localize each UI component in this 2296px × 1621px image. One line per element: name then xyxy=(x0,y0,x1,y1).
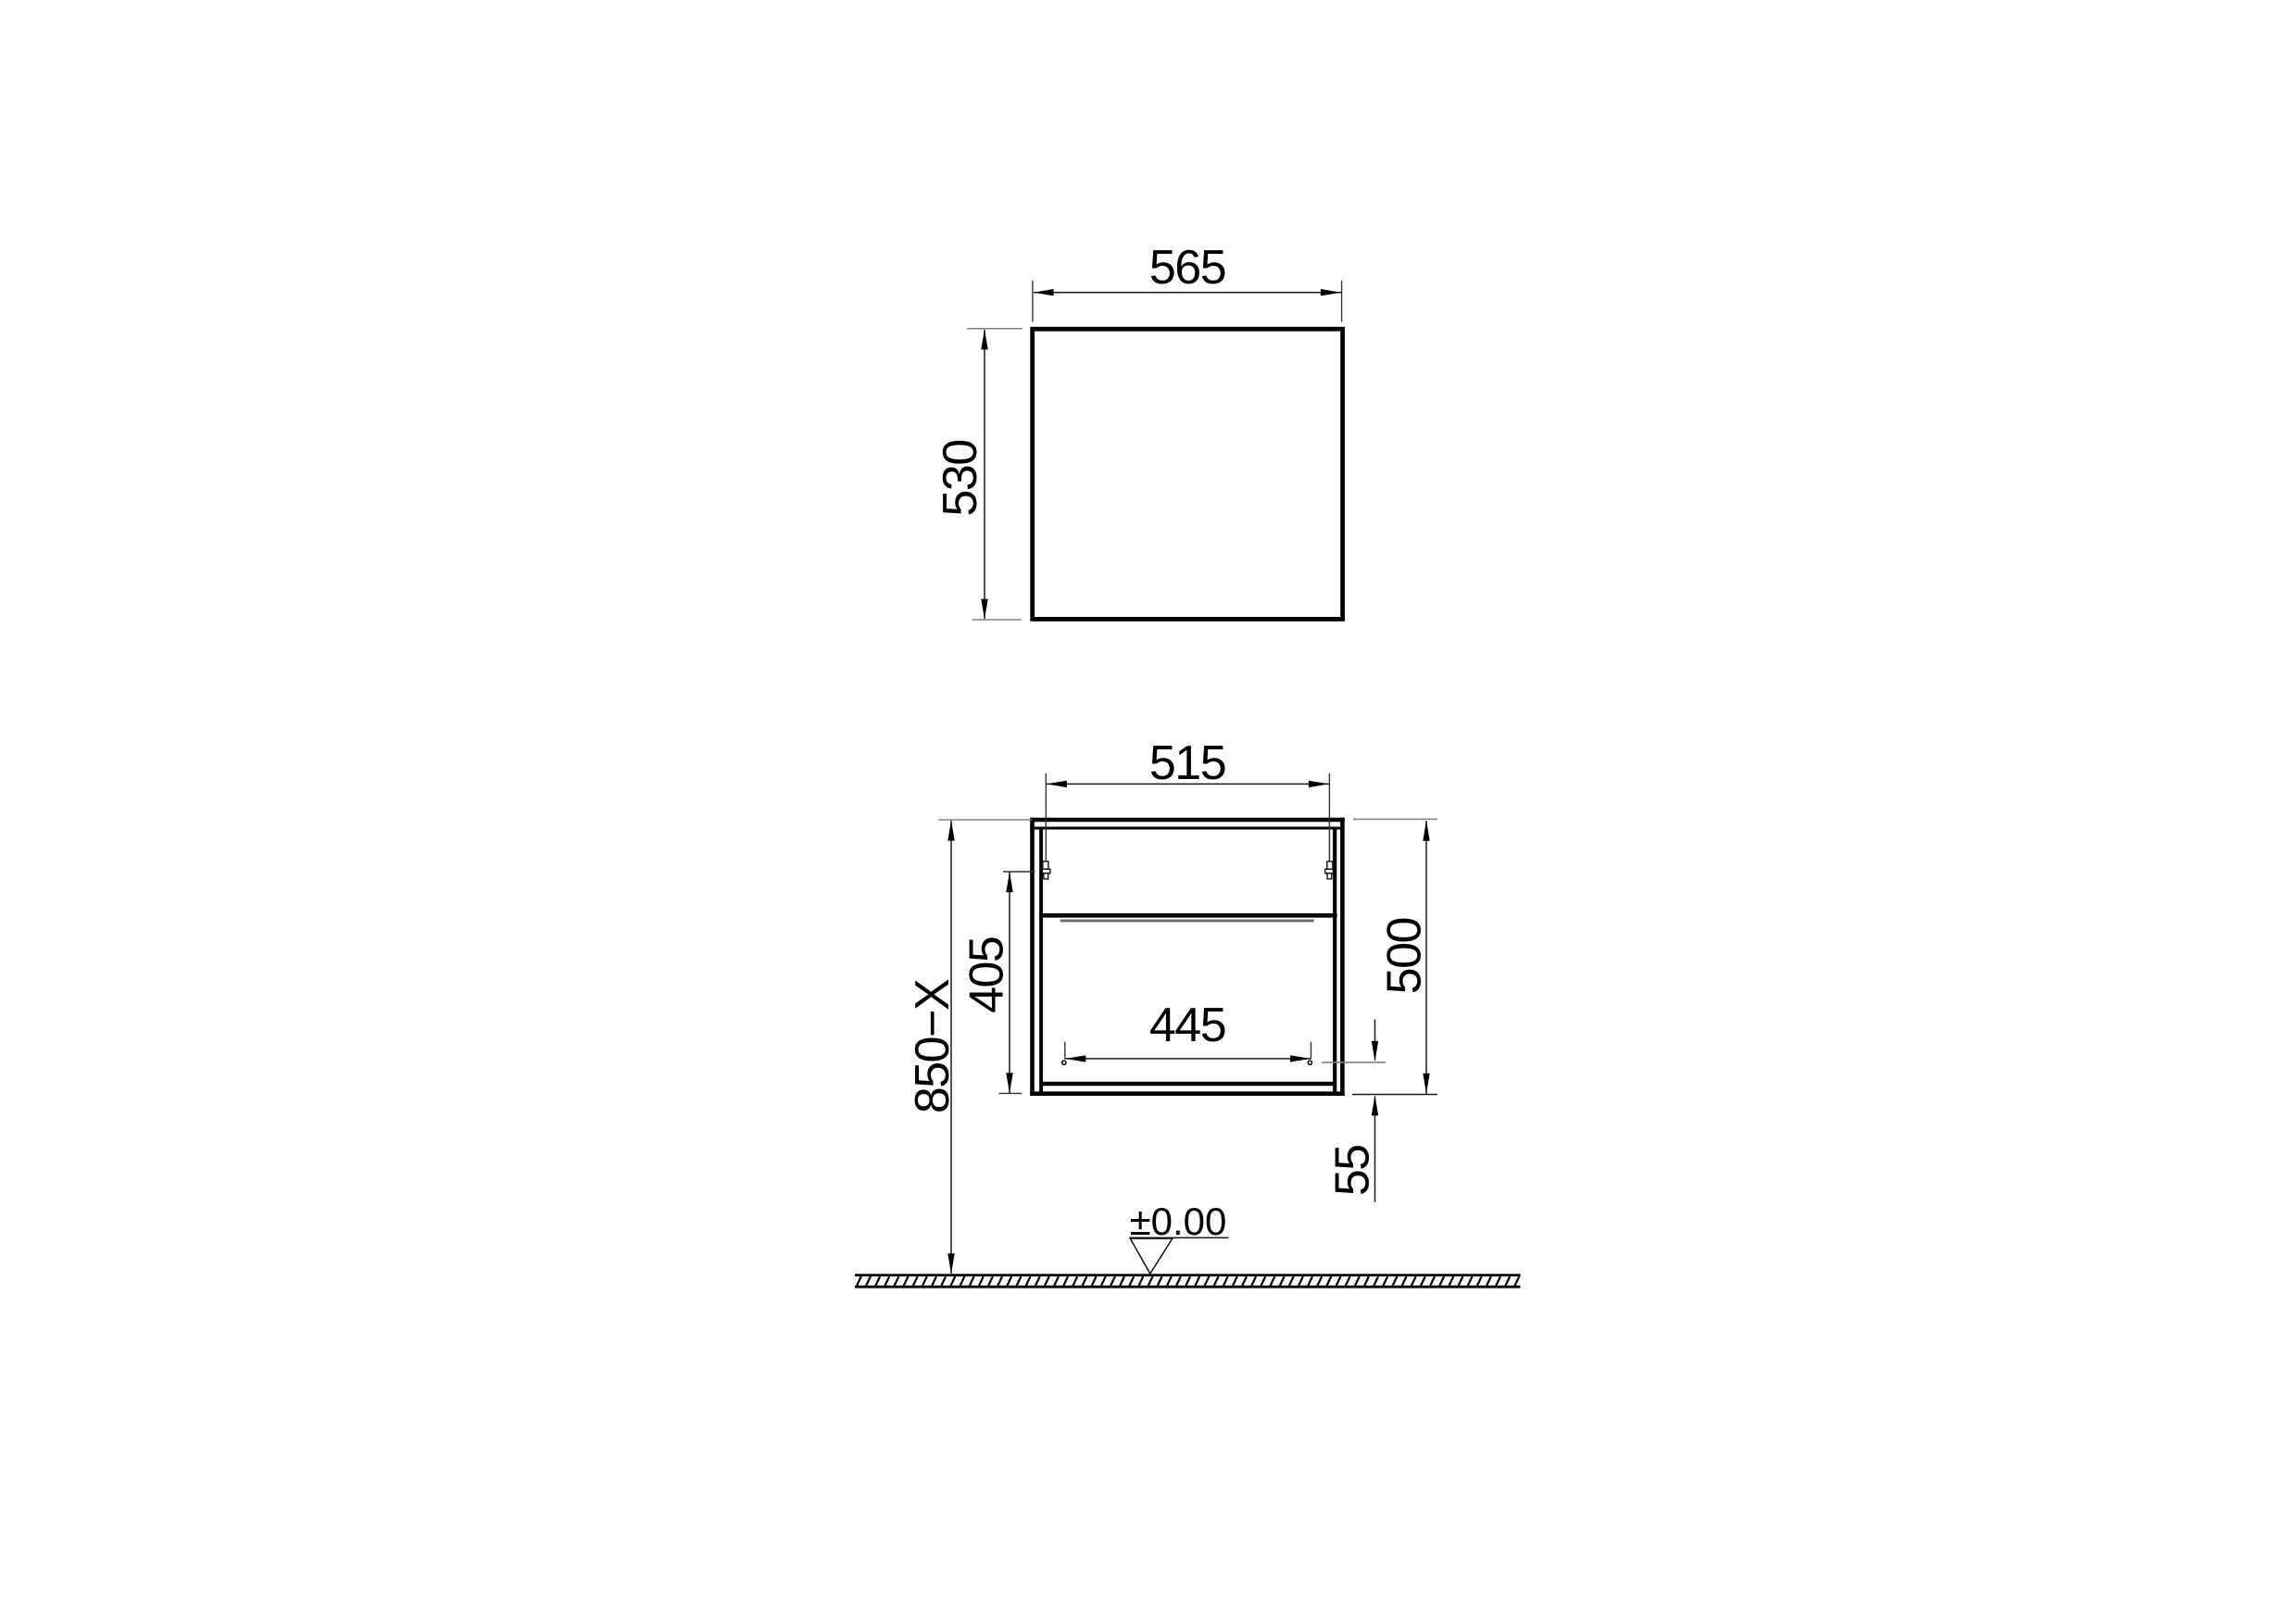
svg-text:±0.00: ±0.00 xyxy=(1130,1200,1227,1243)
svg-text:515: 515 xyxy=(1149,736,1225,790)
svg-text:405: 405 xyxy=(960,937,1014,1013)
svg-text:445: 445 xyxy=(1149,999,1225,1052)
svg-text:530: 530 xyxy=(934,440,987,516)
svg-text:55: 55 xyxy=(1325,1145,1379,1196)
svg-text:500: 500 xyxy=(1377,918,1431,994)
svg-text:850−X: 850−X xyxy=(906,979,960,1113)
svg-text:565: 565 xyxy=(1149,241,1225,295)
